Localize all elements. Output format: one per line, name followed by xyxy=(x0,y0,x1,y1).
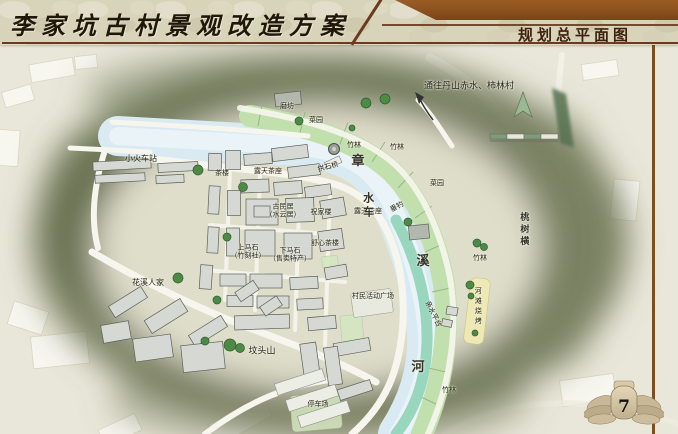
divider-main xyxy=(2,42,678,44)
water-wheel xyxy=(329,144,340,155)
page-ornament: 7 xyxy=(584,374,664,426)
site-plan-map xyxy=(0,0,678,434)
page-number: 7 xyxy=(618,397,630,417)
activity-plaza xyxy=(351,288,394,317)
page-title: 李家坑古村景观改造方案 xyxy=(10,6,351,41)
divider-diagonal xyxy=(350,0,382,45)
divider-upper xyxy=(382,24,678,26)
presentation-slide: 通往丹山赤水、柿林村小火车站磨坊菜园竹林竹林菜园竹林竹林茶楼露天茶座拱石桥古民居… xyxy=(0,0,678,434)
header: 李家坑古村景观改造方案 规划总平面图 xyxy=(0,0,678,45)
